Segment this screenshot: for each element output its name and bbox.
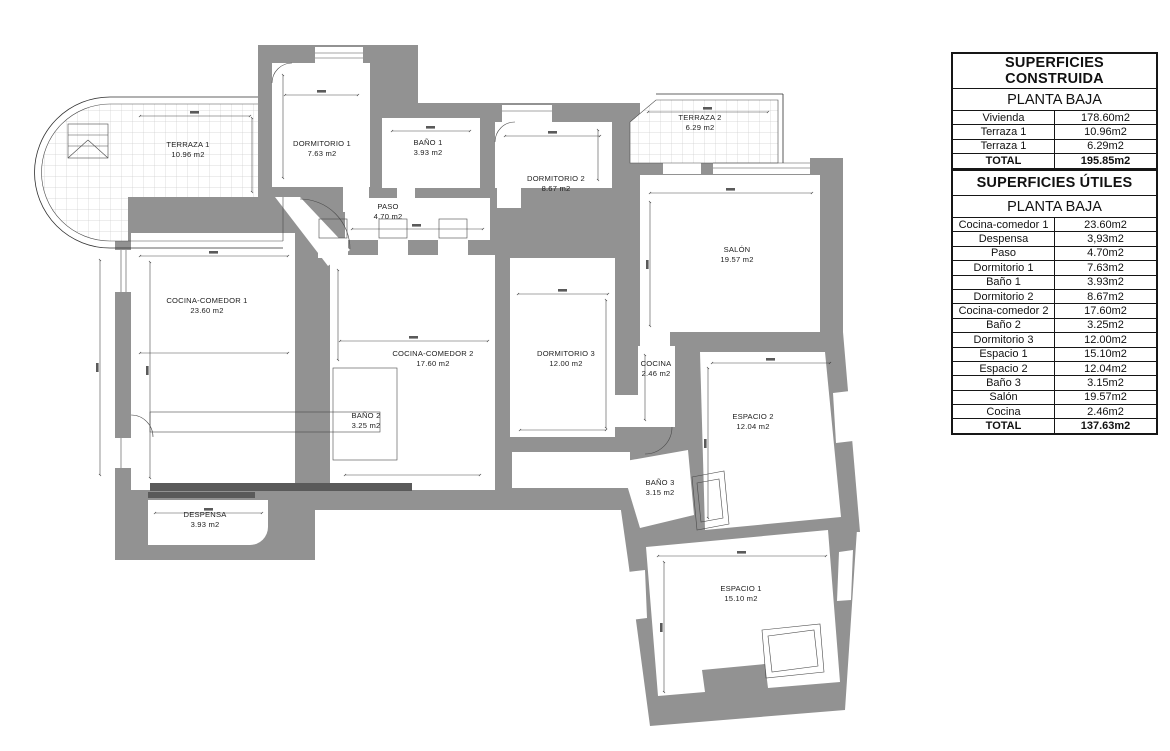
room-label-cell: Salón	[953, 390, 1055, 404]
area-value-cell: 12.00m2	[1055, 333, 1157, 347]
area-value-cell: 23.60m2	[1055, 218, 1157, 232]
table-row: Espacio 1 15.10m2	[953, 347, 1157, 361]
table-row: Salón 19.57m2	[953, 390, 1157, 404]
table-row: Baño 2 3.25m2	[953, 318, 1157, 332]
area-value-cell: 3.93m2	[1055, 275, 1157, 289]
svg-text:3.25 m2: 3.25 m2	[352, 421, 381, 430]
table-row: Dormitorio 3 12.00m2	[953, 333, 1157, 347]
total-label-cell: TOTAL	[953, 419, 1055, 434]
svg-text:PASO: PASO	[377, 202, 398, 211]
svg-text:TERRAZA 1: TERRAZA 1	[166, 140, 209, 149]
svg-text:DESPENSA: DESPENSA	[184, 510, 228, 519]
room-label-cell: Vivienda	[953, 111, 1055, 125]
room-salon: SALÓN 19.57 m2	[720, 245, 753, 264]
table-total-row: TOTAL 137.63m2	[953, 419, 1157, 434]
table-row: Terraza 1 10.96m2	[953, 125, 1157, 139]
room-label-cell: Espacio 1	[953, 347, 1055, 361]
total-label-cell: TOTAL	[953, 154, 1055, 169]
room-label-cell: Baño 1	[953, 275, 1055, 289]
svg-text:4.70 m2: 4.70 m2	[374, 212, 403, 221]
svg-text:19.57 m2: 19.57 m2	[720, 255, 753, 264]
room-paso: PASO 4.70 m2	[374, 202, 403, 221]
table-row: Espacio 2 12.04m2	[953, 361, 1157, 375]
room-label-cell: Despensa	[953, 232, 1055, 246]
room-label-cell: Baño 3	[953, 376, 1055, 390]
room-bano-3: BAÑO 3 3.15 m2	[645, 478, 674, 497]
area-value-cell: 6.29m2	[1055, 139, 1157, 153]
svg-text:BAÑO 3: BAÑO 3	[645, 478, 674, 487]
table-row: Cocina 2.46m2	[953, 405, 1157, 419]
table-row: Vivienda 178.60m2	[953, 111, 1157, 125]
room-espacio-2: ESPACIO 2 12.04 m2	[732, 412, 773, 431]
table-row: Baño 3 3.15m2	[953, 376, 1157, 390]
room-bano-1: BAÑO 1 3.93 m2	[413, 138, 442, 157]
svg-text:DORMITORIO 2: DORMITORIO 2	[527, 174, 585, 183]
svg-text:BAÑO 1: BAÑO 1	[413, 138, 442, 147]
svg-text:23.60 m2: 23.60 m2	[190, 306, 223, 315]
terraza1-tiles	[42, 104, 128, 241]
svg-text:7.63 m2: 7.63 m2	[308, 149, 337, 158]
svg-text:12.04 m2: 12.04 m2	[736, 422, 769, 431]
room-label-cell: Cocina-comedor 1	[953, 218, 1055, 232]
area-value-cell: 10.96m2	[1055, 125, 1157, 139]
svg-text:2.46 m2: 2.46 m2	[642, 369, 671, 378]
room-bano-2: BAÑO 2 3.25 m2	[351, 411, 380, 430]
svg-text:17.60 m2: 17.60 m2	[416, 359, 449, 368]
room-cocina: COCINA 2.46 m2	[641, 359, 672, 378]
area-value-cell: 17.60m2	[1055, 304, 1157, 318]
room-label-cell: Paso	[953, 246, 1055, 260]
svg-text:COCINA: COCINA	[641, 359, 672, 368]
utiles-subtitle: PLANTA BAJA	[953, 196, 1157, 218]
construida-title: SUPERFICIES CONSTRUIDA	[953, 54, 1157, 89]
svg-text:8.67 m2: 8.67 m2	[542, 184, 571, 193]
room-label-cell: Dormitorio 2	[953, 289, 1055, 303]
table-row: Dormitorio 2 8.67m2	[953, 289, 1157, 303]
svg-text:COCINA-COMEDOR 2: COCINA-COMEDOR 2	[392, 349, 473, 358]
svg-text:15.10 m2: 15.10 m2	[724, 594, 757, 603]
area-value-cell: 3.15m2	[1055, 376, 1157, 390]
total-value-cell: 137.63m2	[1055, 419, 1157, 434]
svg-text:COCINA-COMEDOR 1: COCINA-COMEDOR 1	[166, 296, 247, 305]
area-value-cell: 19.57m2	[1055, 390, 1157, 404]
svg-text:SALÓN: SALÓN	[724, 245, 751, 254]
svg-text:10.96 m2: 10.96 m2	[171, 150, 204, 159]
room-terraza-1: TERRAZA 1 10.96 m2	[166, 140, 209, 159]
table-row: Baño 1 3.93m2	[953, 275, 1157, 289]
superficies-construida-table: SUPERFICIES CONSTRUIDA PLANTA BAJA Vivie…	[952, 53, 1157, 169]
area-value-cell: 4.70m2	[1055, 246, 1157, 260]
area-value-cell: 7.63m2	[1055, 261, 1157, 275]
svg-text:TERRAZA 2: TERRAZA 2	[678, 113, 721, 122]
table-total-row: TOTAL 195.85m2	[953, 154, 1157, 169]
room-label-cell: Dormitorio 1	[953, 261, 1055, 275]
svg-text:BAÑO 2: BAÑO 2	[351, 411, 380, 420]
floor-plan-page: TERRAZA 1 10.96 m2 DORMITORIO 1 7.63 m2 …	[0, 0, 1170, 751]
svg-text:12.00 m2: 12.00 m2	[549, 359, 582, 368]
svg-text:ESPACIO 2: ESPACIO 2	[732, 412, 773, 421]
area-value-cell: 2.46m2	[1055, 405, 1157, 419]
svg-text:DORMITORIO 1: DORMITORIO 1	[293, 139, 351, 148]
room-label-cell: Cocina-comedor 2	[953, 304, 1055, 318]
construida-subtitle: PLANTA BAJA	[953, 89, 1157, 111]
area-value-cell: 15.10m2	[1055, 347, 1157, 361]
room-label-cell: Espacio 2	[953, 361, 1055, 375]
area-value-cell: 3.25m2	[1055, 318, 1157, 332]
room-label-cell: Cocina	[953, 405, 1055, 419]
table-row: Despensa 3,93m2	[953, 232, 1157, 246]
table-row: Cocina-comedor 1 23.60m2	[953, 218, 1157, 232]
svg-text:ESPACIO 1: ESPACIO 1	[720, 584, 761, 593]
area-value-cell: 178.60m2	[1055, 111, 1157, 125]
table-row: Dormitorio 1 7.63m2	[953, 261, 1157, 275]
room-label-cell: Terraza 1	[953, 125, 1055, 139]
room-label-cell: Baño 2	[953, 318, 1055, 332]
area-value-cell: 12.04m2	[1055, 361, 1157, 375]
utiles-title: SUPERFICIES ÚTILES	[953, 171, 1157, 196]
area-value-cell: 8.67m2	[1055, 289, 1157, 303]
room-label-cell: Dormitorio 3	[953, 333, 1055, 347]
svg-text:3.93 m2: 3.93 m2	[414, 148, 443, 157]
room-label-cell: Terraza 1	[953, 139, 1055, 153]
svg-text:DORMITORIO 3: DORMITORIO 3	[537, 349, 595, 358]
svg-text:6.29 m2: 6.29 m2	[686, 123, 715, 132]
room-espacio-1: ESPACIO 1 15.10 m2	[720, 584, 761, 603]
table-row: Terraza 1 6.29m2	[953, 139, 1157, 153]
table-row: Paso 4.70m2	[953, 246, 1157, 260]
table-row: Cocina-comedor 2 17.60m2	[953, 304, 1157, 318]
svg-text:3.15 m2: 3.15 m2	[646, 488, 675, 497]
superficies-utiles-table: SUPERFICIES ÚTILES PLANTA BAJA Cocina-co…	[952, 170, 1157, 434]
area-value-cell: 3,93m2	[1055, 232, 1157, 246]
svg-text:3.93 m2: 3.93 m2	[191, 520, 220, 529]
total-value-cell: 195.85m2	[1055, 154, 1157, 169]
